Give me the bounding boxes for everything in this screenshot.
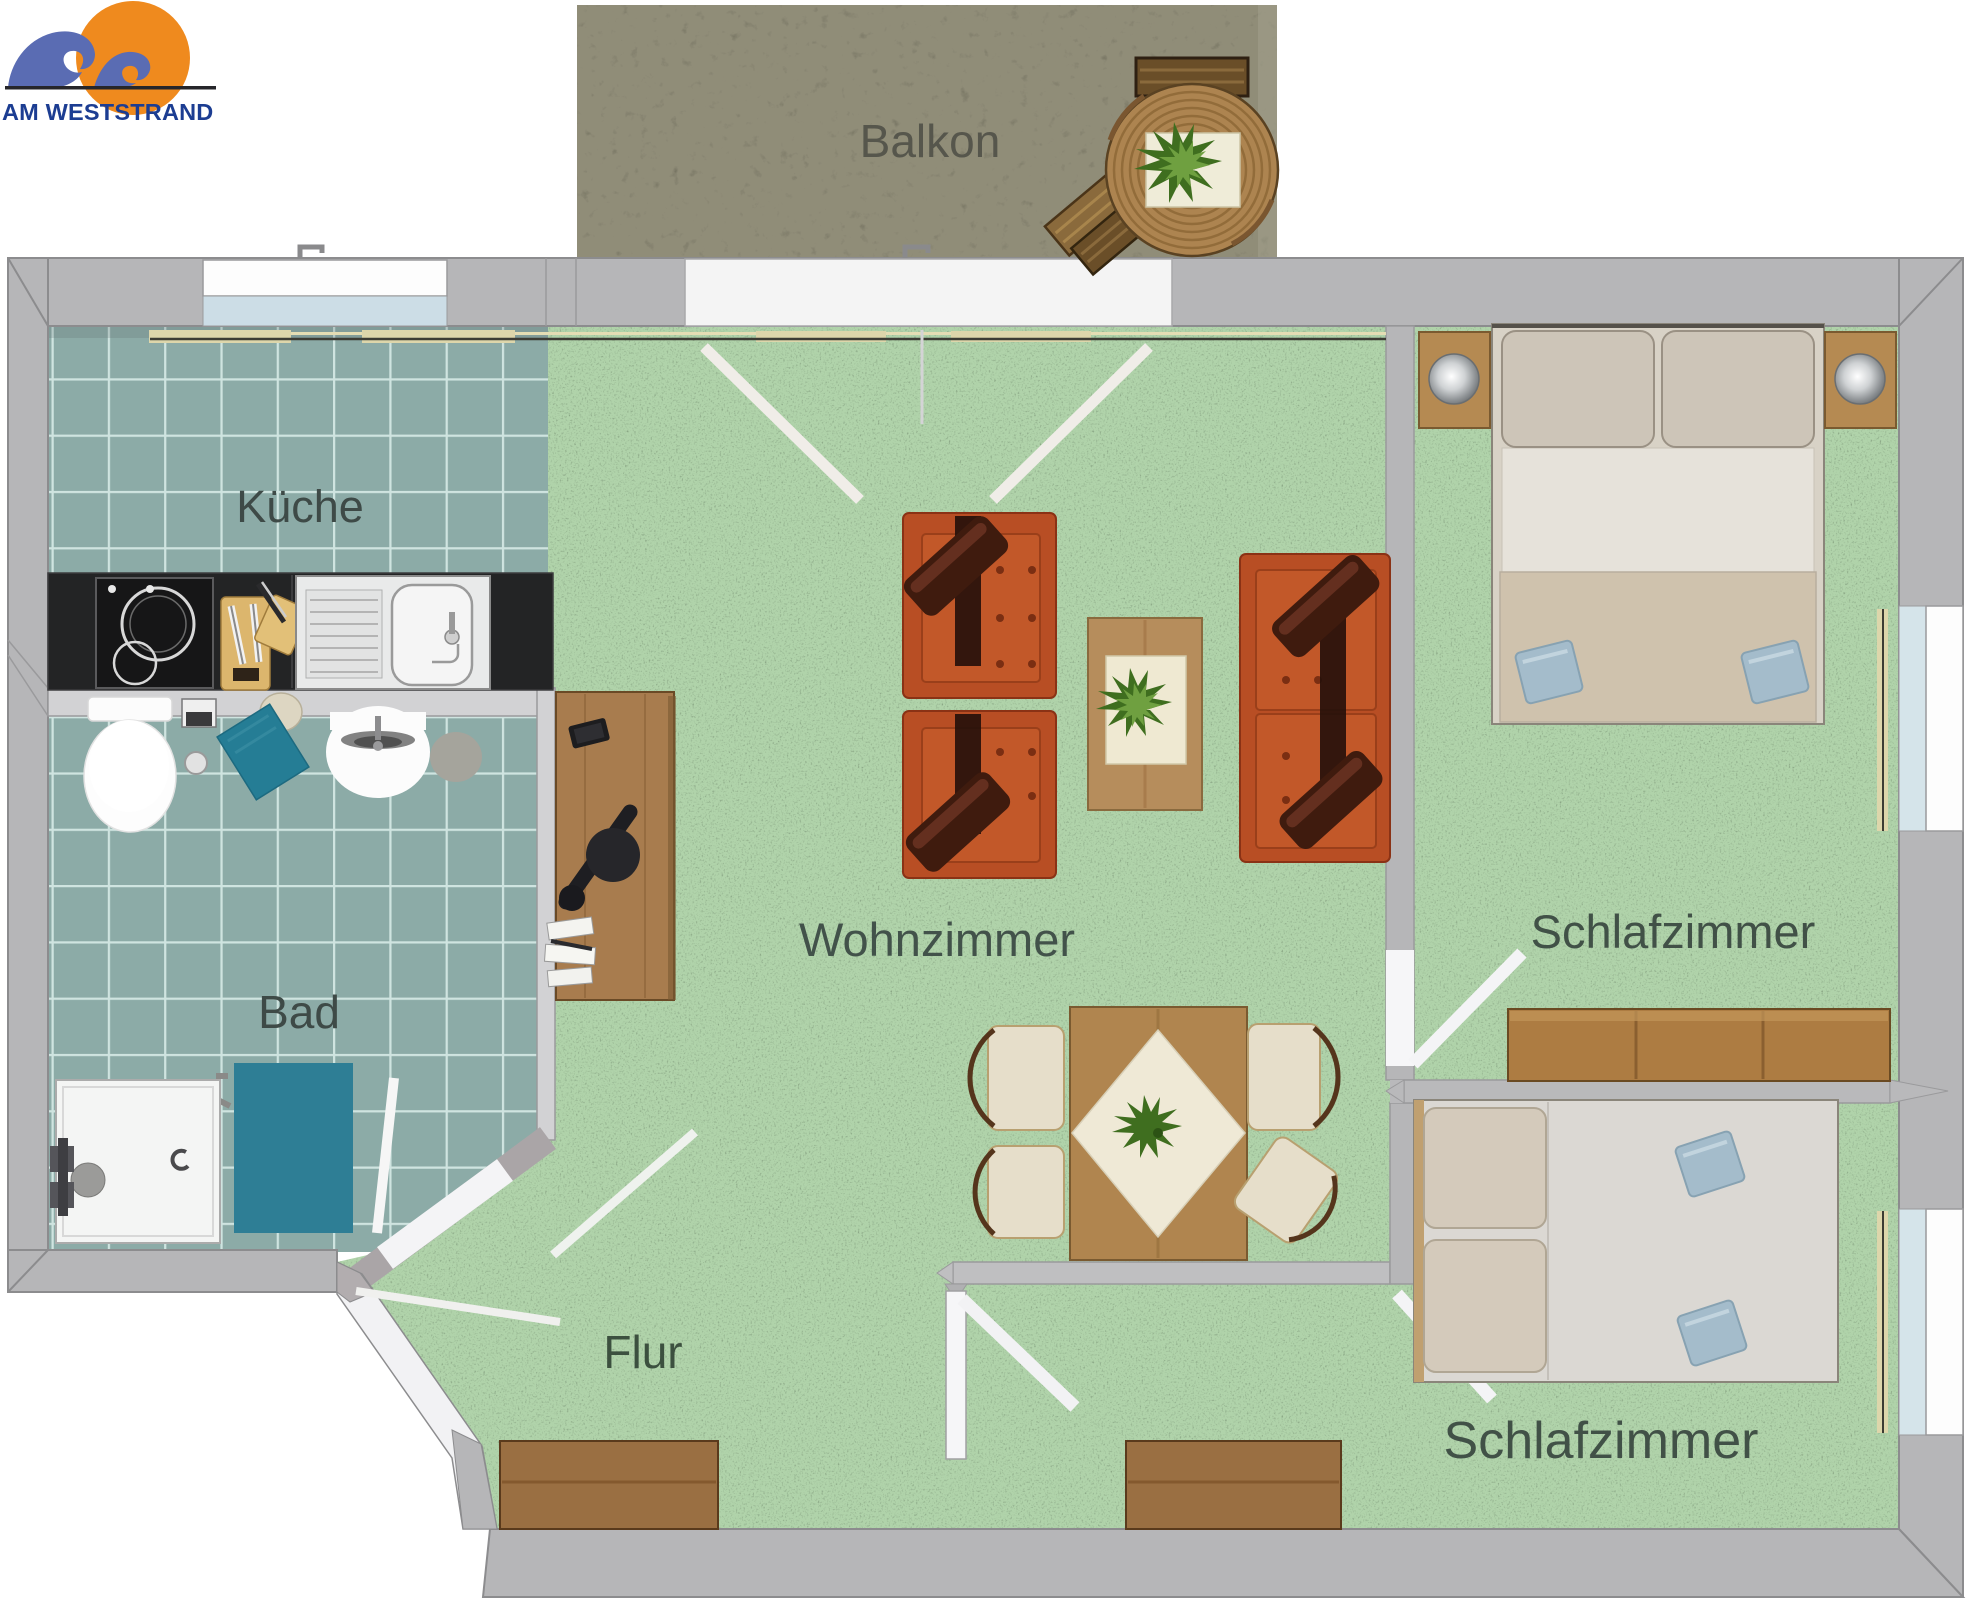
- svg-text:AM WESTSTRAND: AM WESTSTRAND: [2, 99, 213, 125]
- svg-text:Balkon: Balkon: [860, 115, 1001, 167]
- svg-text:Küche: Küche: [236, 481, 364, 532]
- svg-text:Flur: Flur: [603, 1326, 682, 1378]
- svg-text:Wohnzimmer: Wohnzimmer: [799, 913, 1075, 966]
- svg-text:Schlafzimmer: Schlafzimmer: [1531, 905, 1816, 958]
- svg-text:Bad: Bad: [258, 986, 340, 1038]
- svg-text:Schlafzimmer: Schlafzimmer: [1444, 1412, 1759, 1470]
